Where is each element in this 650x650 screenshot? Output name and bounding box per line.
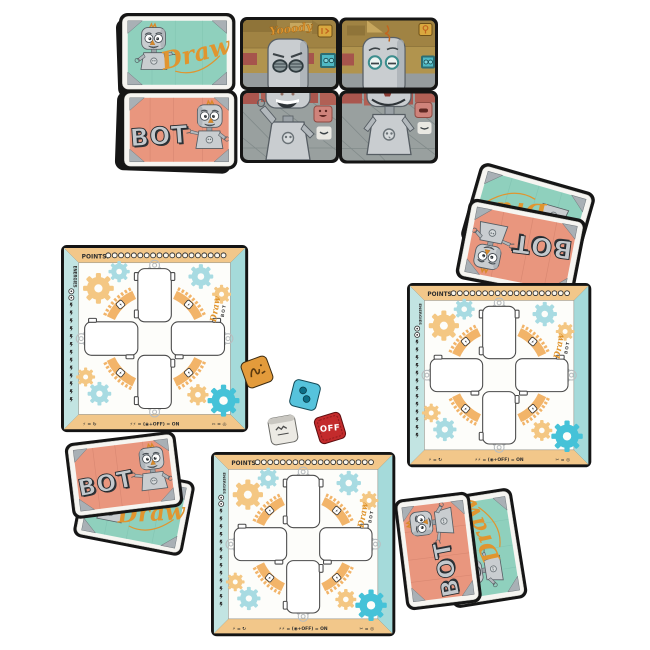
draw-card[interactable]: [119, 13, 235, 93]
robot-scene-grid[interactable]: [240, 17, 438, 164]
off-face-label: OFF: [320, 423, 341, 435]
card-pair-bottom-right[interactable]: [393, 487, 528, 611]
dice-cluster[interactable]: OFF: [240, 355, 347, 446]
card-pair-bottom-left[interactable]: [64, 430, 196, 557]
player-board-left[interactable]: [61, 245, 248, 432]
bot-card[interactable]: [393, 491, 482, 611]
bot-card[interactable]: [121, 90, 237, 170]
die-cyan[interactable]: [289, 379, 322, 412]
card-pair-top-right[interactable]: [454, 161, 597, 301]
scene-card-top-right[interactable]: [339, 18, 438, 96]
player-board-bottom[interactable]: [211, 452, 395, 636]
die-white[interactable]: [267, 414, 298, 445]
game-scene: Draw BOT BOT: [0, 0, 650, 650]
player-board-right[interactable]: [407, 283, 591, 467]
scene-card-top-left[interactable]: [240, 17, 339, 95]
bot-card[interactable]: [64, 430, 184, 519]
card-stack-top-left[interactable]: [115, 13, 238, 174]
die-red[interactable]: OFF: [313, 411, 347, 445]
